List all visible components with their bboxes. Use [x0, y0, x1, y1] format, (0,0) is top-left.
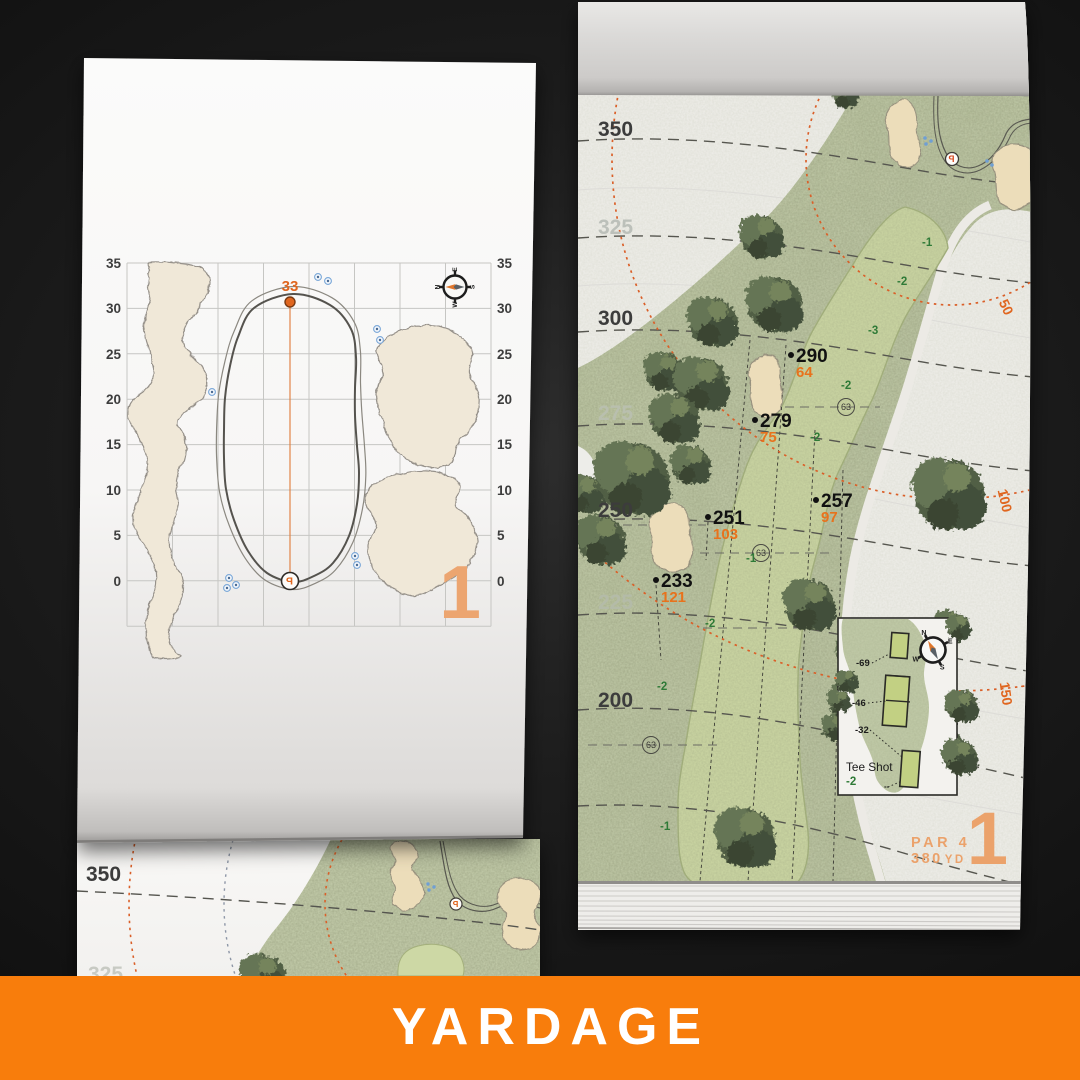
svg-text:W: W	[452, 301, 459, 308]
svg-text:YARDAGE: YARDAGE	[392, 998, 710, 1056]
svg-text:63: 63	[756, 548, 766, 558]
svg-text:-2: -2	[810, 432, 820, 444]
svg-text:25: 25	[497, 347, 513, 362]
svg-text:P: P	[948, 154, 954, 164]
svg-text:PAR 4: PAR 4	[911, 835, 970, 851]
svg-text:200: 200	[598, 689, 633, 712]
svg-text:35: 35	[106, 256, 122, 271]
svg-text:20: 20	[497, 392, 512, 407]
svg-text:5: 5	[113, 528, 121, 543]
svg-text:Tee Shot: Tee Shot	[846, 760, 893, 774]
svg-text:--: --	[884, 782, 890, 791]
svg-text:63: 63	[646, 740, 656, 750]
svg-text:33: 33	[282, 278, 299, 295]
svg-text:-69: -69	[856, 658, 870, 669]
svg-text:325: 325	[598, 216, 633, 239]
svg-text:E: E	[452, 267, 459, 272]
svg-text:-1: -1	[746, 553, 757, 565]
svg-text:35: 35	[497, 256, 513, 271]
svg-text:350: 350	[598, 118, 633, 141]
svg-text:-2: -2	[657, 681, 667, 693]
svg-text:64: 64	[796, 364, 813, 381]
svg-text:30: 30	[497, 301, 512, 316]
svg-text:300: 300	[598, 307, 633, 330]
svg-text:103: 103	[713, 526, 738, 543]
svg-text:N: N	[435, 284, 442, 289]
svg-text:S: S	[940, 665, 945, 672]
svg-text:-3: -3	[868, 325, 878, 337]
svg-text:25: 25	[106, 347, 122, 362]
svg-text:10: 10	[106, 483, 121, 498]
svg-text:-2: -2	[841, 380, 851, 392]
svg-text:225: 225	[598, 591, 633, 614]
svg-text:15: 15	[106, 437, 122, 452]
svg-text:121: 121	[661, 589, 686, 606]
svg-text:10: 10	[497, 483, 512, 498]
svg-text:P: P	[452, 899, 458, 909]
svg-text:75: 75	[760, 429, 777, 446]
svg-text:97: 97	[821, 509, 838, 526]
svg-text:-46: -46	[852, 698, 866, 709]
svg-text:S: S	[470, 284, 477, 289]
svg-text:1: 1	[967, 797, 1008, 880]
svg-text:63: 63	[841, 402, 851, 412]
svg-text:E: E	[948, 638, 953, 645]
svg-text:250: 250	[598, 499, 633, 522]
svg-text:150: 150	[997, 681, 1016, 707]
svg-text:-2: -2	[897, 276, 907, 288]
svg-text:P: P	[286, 576, 293, 588]
svg-text:20: 20	[106, 392, 121, 407]
svg-text:N: N	[921, 630, 926, 637]
svg-text:15: 15	[497, 437, 513, 452]
svg-text:-2: -2	[705, 618, 715, 630]
svg-text:W: W	[912, 657, 919, 664]
svg-text:0: 0	[497, 574, 505, 589]
svg-text:380YD: 380YD	[911, 851, 966, 867]
svg-text:-1: -1	[660, 821, 671, 833]
svg-text:-2: -2	[846, 776, 856, 788]
svg-text:30: 30	[106, 301, 121, 316]
svg-text:275: 275	[598, 402, 633, 425]
svg-text:-32: -32	[855, 725, 869, 736]
svg-text:350: 350	[86, 863, 121, 886]
svg-text:1: 1	[439, 550, 481, 634]
svg-text:5: 5	[497, 528, 505, 543]
svg-text:-1: -1	[922, 237, 933, 249]
svg-text:0: 0	[113, 574, 121, 589]
